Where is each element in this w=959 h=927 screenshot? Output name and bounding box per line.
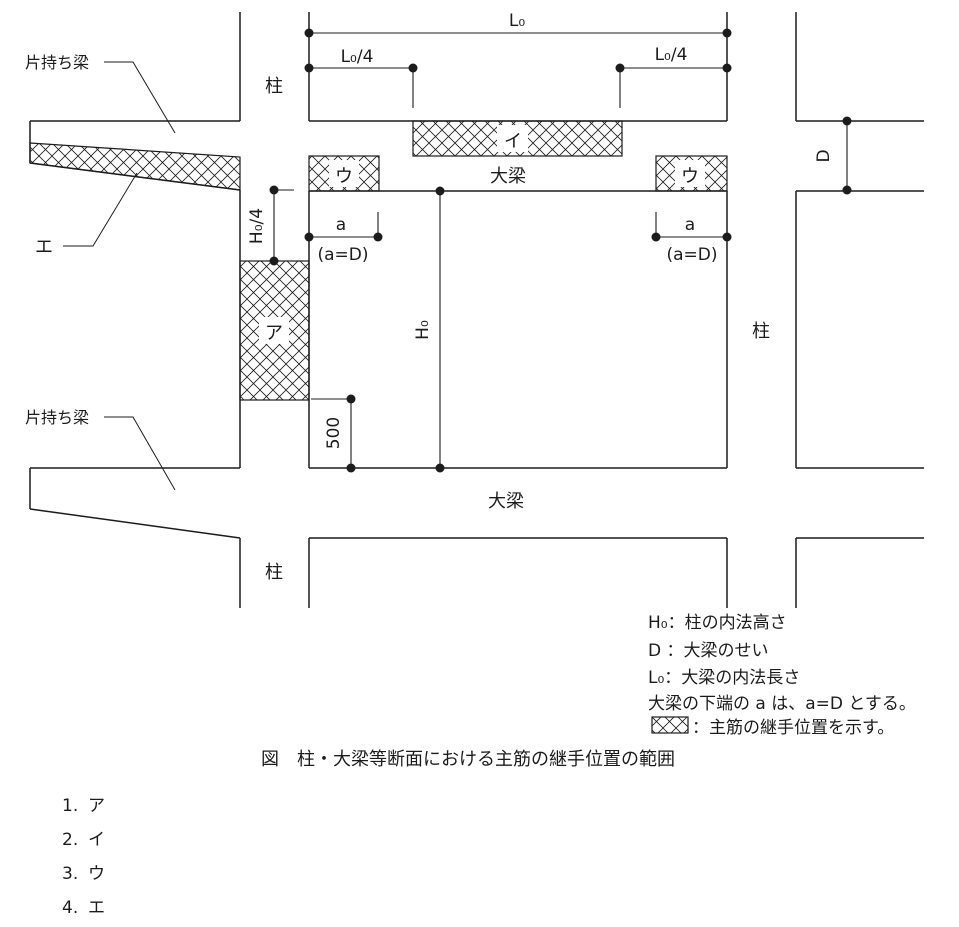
lower-girder-outline: [309, 468, 924, 538]
lower-cantilever-label: 片持ち梁: [25, 408, 89, 427]
upper-left-column-label: 柱: [265, 76, 283, 97]
choice-1-number: 1.: [62, 796, 88, 816]
choice-1-label: ア: [88, 791, 105, 816]
dim-l0q-right-line: [620, 68, 727, 108]
choice-3[interactable]: 3. ウ: [62, 859, 105, 893]
dim-500-label: 500: [324, 417, 344, 449]
dim-l0q-left-line: [309, 68, 413, 108]
region-i-label: イ: [504, 131, 522, 152]
legend-l0: L₀：大梁の内法長さ: [648, 668, 800, 688]
dim-a-left-label: a: [336, 215, 346, 235]
dim-a-eq-d-left-label: (a=D): [317, 245, 368, 265]
lower-girder-label: 大梁: [488, 491, 524, 512]
legend-a-note: 大梁の下端の a は、a=D とする。: [648, 694, 916, 714]
choice-3-number: 3.: [62, 864, 88, 884]
splice-hatch-swatch-icon: [652, 717, 688, 733]
dim-a-right-label: a: [685, 215, 695, 235]
dim-l0q-right-label: L₀/4: [655, 45, 688, 65]
structure-outline: [30, 12, 924, 608]
dim-h0-label: H₀: [413, 320, 433, 340]
answer-choices: 1. ア 2. イ 3. ウ 4. エ: [62, 791, 105, 927]
choice-2[interactable]: 2. イ: [62, 825, 105, 859]
splice-hatch-regions: [30, 121, 727, 400]
choice-4[interactable]: 4. エ: [62, 893, 105, 927]
dim-a-eq-d-right-label: (a=D): [666, 245, 717, 265]
right-column-label: 柱: [752, 321, 770, 342]
legend-h0: H₀：柱の内法高さ: [648, 613, 787, 633]
upper-girder-label: 大梁: [490, 166, 526, 187]
choice-4-number: 4.: [62, 898, 88, 918]
choice-1[interactable]: 1. ア: [62, 791, 105, 825]
lower-cantilever-leader: [104, 417, 175, 490]
dim-l0-label: L₀: [509, 11, 525, 31]
choice-3-label: ウ: [88, 859, 105, 884]
region-u-left-label: ウ: [335, 166, 353, 187]
dim-d-label: D: [814, 149, 834, 162]
lower-cantilever-outline: [30, 468, 240, 538]
dim-h0q-line: [274, 190, 294, 261]
choice-4-label: エ: [88, 893, 105, 918]
lower-left-column-label: 柱: [265, 562, 283, 583]
region-e-hatch: [30, 143, 240, 190]
exam-question-page: ア イ ウ ウ エ 片持ち梁 片持ち梁 柱 柱 柱 大梁 大梁 L₀: [0, 0, 959, 927]
legend: H₀：柱の内法高さ D ：大梁のせい L₀：大梁の内法長さ 大梁の下端の a は…: [648, 613, 916, 738]
region-e-label: エ: [35, 237, 53, 258]
choice-2-number: 2.: [62, 830, 88, 850]
figure-caption: 図 柱・大梁等断面における主筋の継手位置の範囲: [261, 749, 675, 770]
dim-h0q-label: H₀/4: [247, 208, 267, 244]
structural-diagram: ア イ ウ ウ エ 片持ち梁 片持ち梁 柱 柱 柱 大梁 大梁 L₀: [0, 0, 959, 927]
region-e-leader: [63, 173, 137, 246]
region-u-right-label: ウ: [681, 166, 699, 187]
upper-cantilever-leader: [104, 62, 175, 133]
upper-cantilever-label: 片持ち梁: [25, 53, 89, 72]
legend-hatch: ：主筋の継手位置を示す。: [692, 718, 894, 738]
region-a-label: ア: [265, 323, 283, 344]
dim-l0q-left-label: L₀/4: [341, 47, 374, 67]
legend-d: D ：大梁のせい: [648, 641, 769, 661]
lower-columns-outline: [240, 538, 796, 608]
choice-2-label: イ: [88, 825, 105, 850]
